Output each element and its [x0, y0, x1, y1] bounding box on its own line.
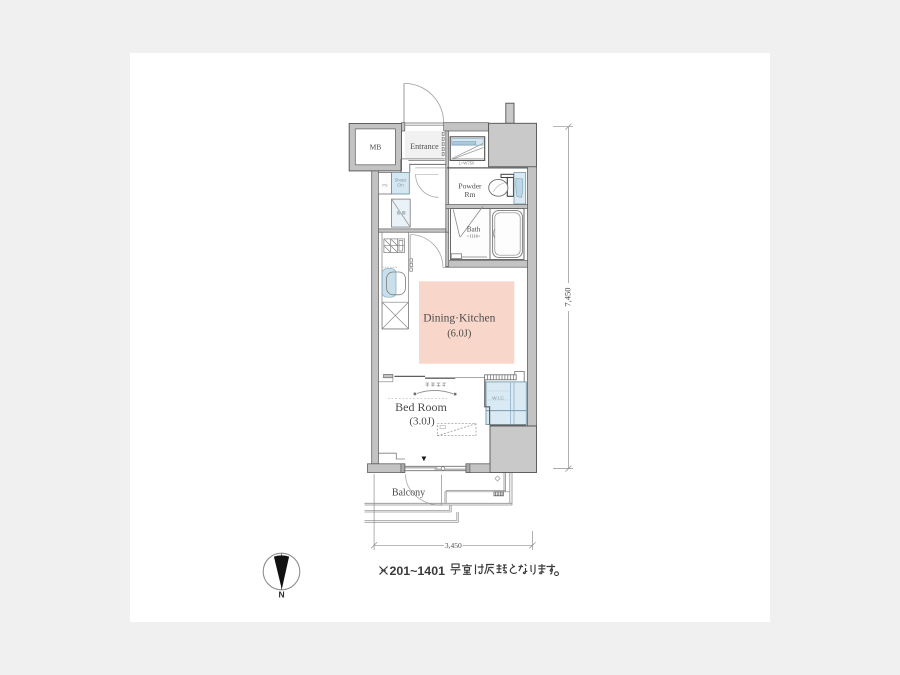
svg-text:(6.0J): (6.0J) [447, 329, 472, 340]
svg-text:Balcony: Balcony [392, 487, 425, 498]
svg-text:201~1401: 201~1401 [390, 564, 446, 578]
svg-text:<1116>: <1116> [466, 234, 480, 239]
svg-text:MB: MB [370, 143, 382, 152]
svg-text:Ctn: Ctn [397, 183, 404, 188]
svg-text:3,450: 3,450 [445, 541, 462, 550]
svg-text:N: N [279, 590, 285, 600]
svg-text:7,450: 7,450 [562, 287, 572, 306]
svg-text:Dining·Kitchen: Dining·Kitchen [423, 313, 495, 325]
svg-text:Rm: Rm [465, 190, 476, 199]
svg-text:W.I.C: W.I.C [492, 395, 504, 401]
svg-text:L=W750: L=W750 [459, 161, 475, 166]
svg-text:(3.0J): (3.0J) [409, 416, 435, 428]
svg-text:Bed Room: Bed Room [395, 400, 447, 414]
svg-text:Bath: Bath [467, 226, 481, 234]
svg-text:PS: PS [382, 182, 388, 187]
svg-text:Entrance: Entrance [410, 142, 439, 151]
